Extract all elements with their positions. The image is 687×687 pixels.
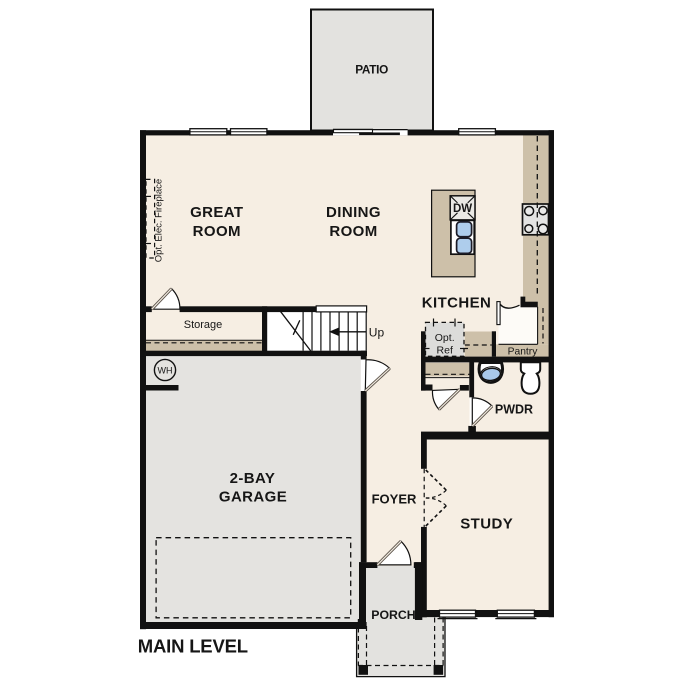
svg-text:Pantry: Pantry [508,347,539,358]
svg-text:2-BAY: 2-BAY [230,470,276,487]
svg-text:Up: Up [369,325,385,339]
svg-text:PATIO: PATIO [355,63,388,77]
svg-text:PWDR: PWDR [495,403,533,417]
svg-text:ROOM: ROOM [329,223,377,240]
svg-text:GARAGE: GARAGE [219,489,287,506]
svg-text:Storage: Storage [184,319,223,331]
svg-text:Ref: Ref [437,345,453,357]
svg-text:ROOM: ROOM [193,223,241,240]
svg-text:PORCH: PORCH [371,608,416,622]
svg-text:Opt.: Opt. [435,332,455,344]
svg-text:GREAT: GREAT [190,204,243,221]
svg-text:DINING: DINING [326,204,381,221]
svg-text:Opt. Elec. Fireplace: Opt. Elec. Fireplace [154,179,165,262]
svg-text:KITCHEN: KITCHEN [422,294,491,311]
svg-text:WH: WH [158,366,173,376]
svg-text:STUDY: STUDY [460,516,513,533]
svg-text:MAIN LEVEL: MAIN LEVEL [138,635,248,656]
svg-text:FOYER: FOYER [372,492,417,507]
svg-text:DW: DW [453,203,472,215]
